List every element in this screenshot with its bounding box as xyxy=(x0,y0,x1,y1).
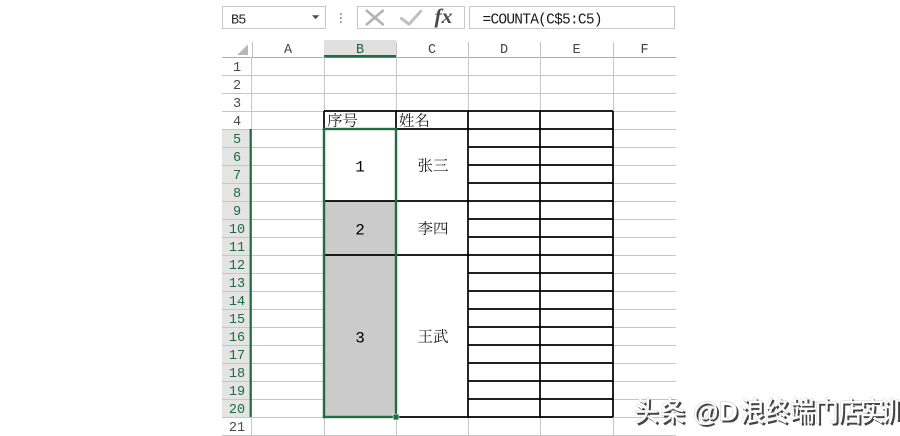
svg-text:21: 21 xyxy=(229,421,245,436)
svg-text:19: 19 xyxy=(229,385,245,400)
svg-text:17: 17 xyxy=(229,349,245,364)
svg-text:3: 3 xyxy=(233,97,241,112)
svg-text:8: 8 xyxy=(233,187,241,202)
svg-text:12: 12 xyxy=(229,259,245,274)
svg-text:7: 7 xyxy=(233,169,241,184)
svg-text:E: E xyxy=(572,43,580,58)
svg-text:15: 15 xyxy=(229,313,245,328)
svg-text:10: 10 xyxy=(229,223,245,238)
svg-text:C: C xyxy=(428,43,436,58)
svg-text:B5: B5 xyxy=(231,13,246,28)
svg-text:5: 5 xyxy=(233,133,241,148)
svg-text:=COUNTA(C$5:C5): =COUNTA(C$5:C5) xyxy=(483,12,602,28)
svg-text:2: 2 xyxy=(355,222,365,240)
svg-text:9: 9 xyxy=(233,205,241,220)
svg-text:@D: @D xyxy=(693,397,738,427)
svg-text:4: 4 xyxy=(233,115,241,130)
svg-text:B: B xyxy=(356,43,364,58)
svg-text:6: 6 xyxy=(233,151,241,166)
svg-text:11: 11 xyxy=(229,241,245,256)
svg-text:A: A xyxy=(284,43,293,58)
svg-text:20: 20 xyxy=(229,403,245,418)
svg-text:D: D xyxy=(500,43,508,58)
svg-text:fx: fx xyxy=(435,4,453,28)
svg-text:1: 1 xyxy=(233,61,241,76)
svg-text:14: 14 xyxy=(229,295,245,310)
svg-text:2: 2 xyxy=(233,79,241,94)
svg-text:13: 13 xyxy=(229,277,245,292)
svg-text:1: 1 xyxy=(355,159,365,177)
svg-text:F: F xyxy=(640,43,648,58)
svg-text:16: 16 xyxy=(229,331,245,346)
svg-text:3: 3 xyxy=(355,330,365,348)
svg-text:18: 18 xyxy=(229,367,245,382)
